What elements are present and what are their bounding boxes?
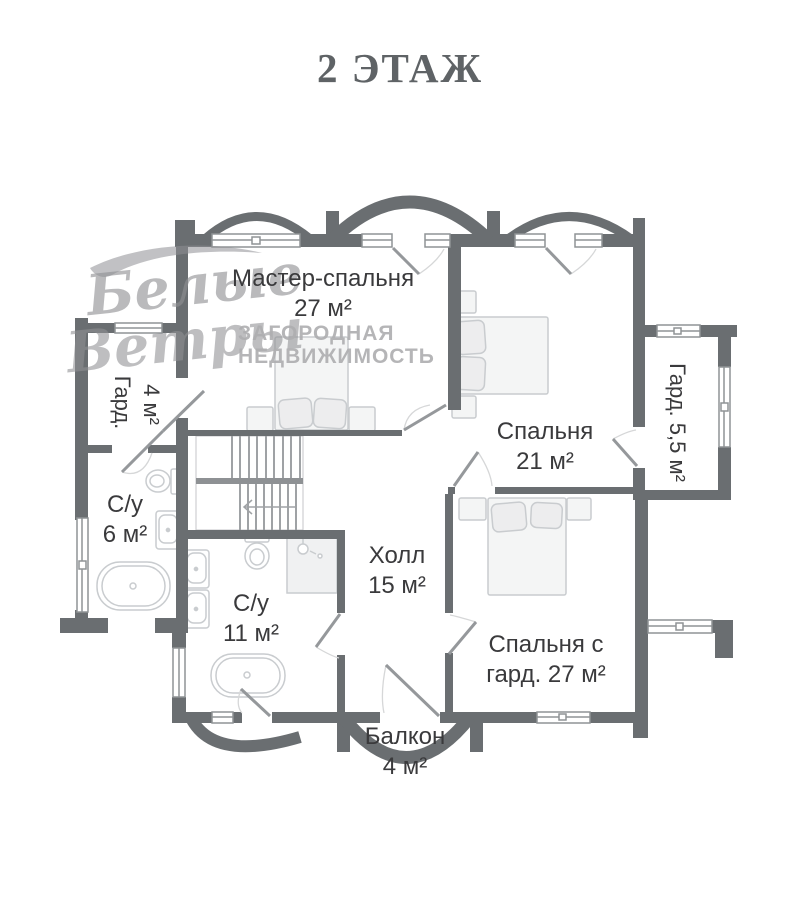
room-label-hall: Холл 15 м²	[368, 541, 426, 601]
room-label-bedroom27: Спальня с гард. 27 м²	[486, 630, 606, 690]
room-label-wardrobe-right: Гард. 5,5 м²	[655, 350, 700, 495]
watermark-caption: ЗАГОРОДНАЯ НЕДВИЖИМОСТЬ	[238, 322, 435, 368]
floor-plan-screenshot: 2 ЭТАЖ	[0, 0, 800, 900]
room-label-master: Мастер-спальня 27 м²	[232, 264, 414, 324]
room-label-bath11: С/у 11 м²	[223, 589, 279, 649]
room-label-bath6: С/у 6 м²	[103, 490, 148, 550]
watermark-caption-line1: ЗАГОРОДНАЯ	[238, 322, 435, 345]
room-label-bedroom21: Спальня 21 м²	[497, 417, 593, 477]
room-label-wardrobe-left-area: 4 м²	[138, 362, 164, 447]
watermark-caption-line2: НЕДВИЖИМОСТЬ	[238, 345, 435, 368]
room-label-balcony: Балкон 4 м²	[365, 722, 445, 782]
room-label-wardrobe-left-name: Гард.	[109, 355, 135, 450]
